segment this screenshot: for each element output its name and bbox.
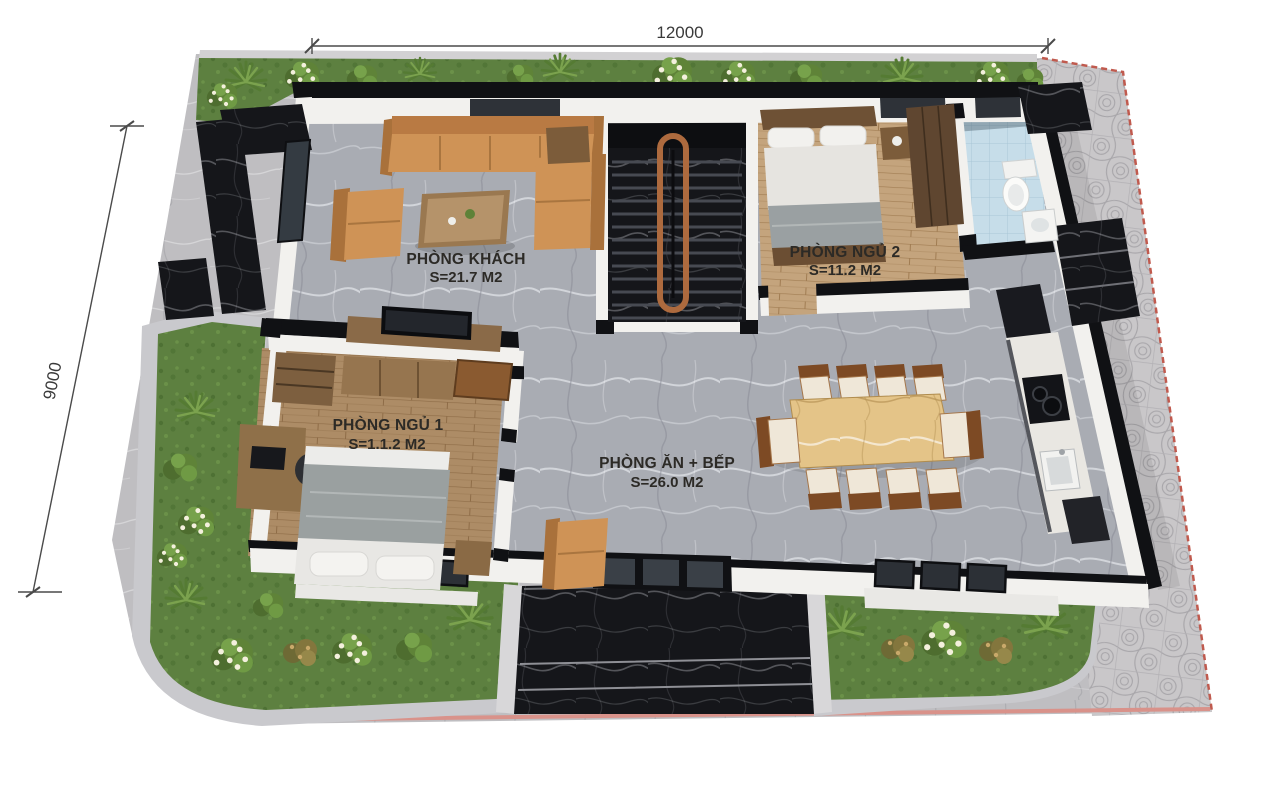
coffee-table (415, 190, 515, 255)
dresser (341, 356, 456, 400)
floor-plan-render: PHÒNG KHÁCH S=21.7 M2 PHÒNG NGỦ 2 S=11.2… (0, 0, 1280, 800)
hall-armchair (542, 518, 608, 590)
label-living-name: PHÒNG KHÁCH (406, 250, 525, 268)
label-dining-name: PHÒNG ĂN + BẾP (599, 454, 735, 472)
dining-chair-left (756, 416, 800, 468)
entrance-porch (496, 580, 832, 714)
top-right-corner-block (1018, 82, 1092, 134)
sofa-right (534, 154, 606, 250)
cooktop (1022, 374, 1070, 424)
dining-chair-right (940, 410, 984, 460)
dining-table (790, 394, 954, 468)
armchair-left (330, 188, 404, 262)
sink (1022, 209, 1058, 243)
floor-plan-canvas: PHÒNG KHÁCH S=21.7 M2 PHÒNG NGỦ 2 S=11.2… (0, 0, 1280, 800)
label-dining-area: S=26.0 M2 (631, 474, 704, 491)
nightstand-1 (453, 540, 492, 576)
staircase (596, 94, 758, 334)
bedroom2-door-opening (768, 282, 817, 316)
room-door-panel (454, 360, 512, 400)
side-table (546, 126, 590, 164)
label-bedroom1-name: PHÒNG NGỦ 1 (333, 416, 444, 434)
bed-1 (294, 446, 450, 590)
left-fin-wall-2 (158, 258, 214, 320)
wardrobe (906, 104, 964, 228)
label-living-area: S=21.7 M2 (430, 269, 503, 286)
top-wall-window-bathroom (975, 97, 1021, 118)
label-bedroom2-name: PHÒNG NGỦ 2 (790, 243, 901, 261)
kitchen-sink (1040, 449, 1080, 491)
label-bedroom2-area: S=11.2 M2 (809, 262, 881, 279)
dimension-width-label: 12000 (656, 23, 703, 42)
label-bedroom1-area: S=1.1.2 M2 (348, 436, 425, 453)
bookshelf (272, 352, 336, 406)
